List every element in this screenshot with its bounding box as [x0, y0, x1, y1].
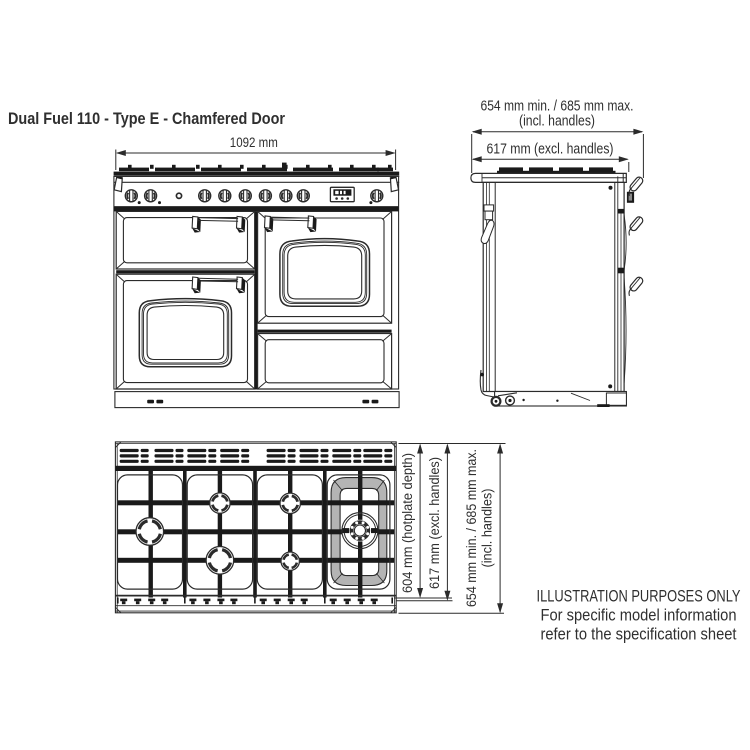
svg-text:Dual Fuel 110 - Type E - Chamf: Dual Fuel 110 - Type E - Chamfered Door: [8, 109, 285, 128]
svg-text:654 mm min. / 685 mm max.: 654 mm min. / 685 mm max.: [464, 449, 479, 607]
svg-text:ILLUSTRATION PURPOSES ONLY: ILLUSTRATION PURPOSES ONLY: [537, 588, 741, 606]
svg-text:604 mm (hotplate depth): 604 mm (hotplate depth): [400, 453, 415, 593]
svg-text:(incl. handles): (incl. handles): [480, 489, 495, 568]
svg-text:654 mm min. / 685 mm max.: 654 mm min. / 685 mm max.: [481, 99, 634, 115]
svg-text:refer to the specification she: refer to the specification sheet: [541, 626, 737, 644]
svg-text:For specific model information: For specific model information: [541, 607, 737, 625]
svg-text:617 mm (excl. handles): 617 mm (excl. handles): [427, 457, 442, 589]
svg-text:617 mm (excl. handles): 617 mm (excl. handles): [487, 142, 614, 158]
svg-text:(incl. handles): (incl. handles): [519, 114, 595, 130]
svg-text:1092 mm: 1092 mm: [230, 135, 278, 150]
